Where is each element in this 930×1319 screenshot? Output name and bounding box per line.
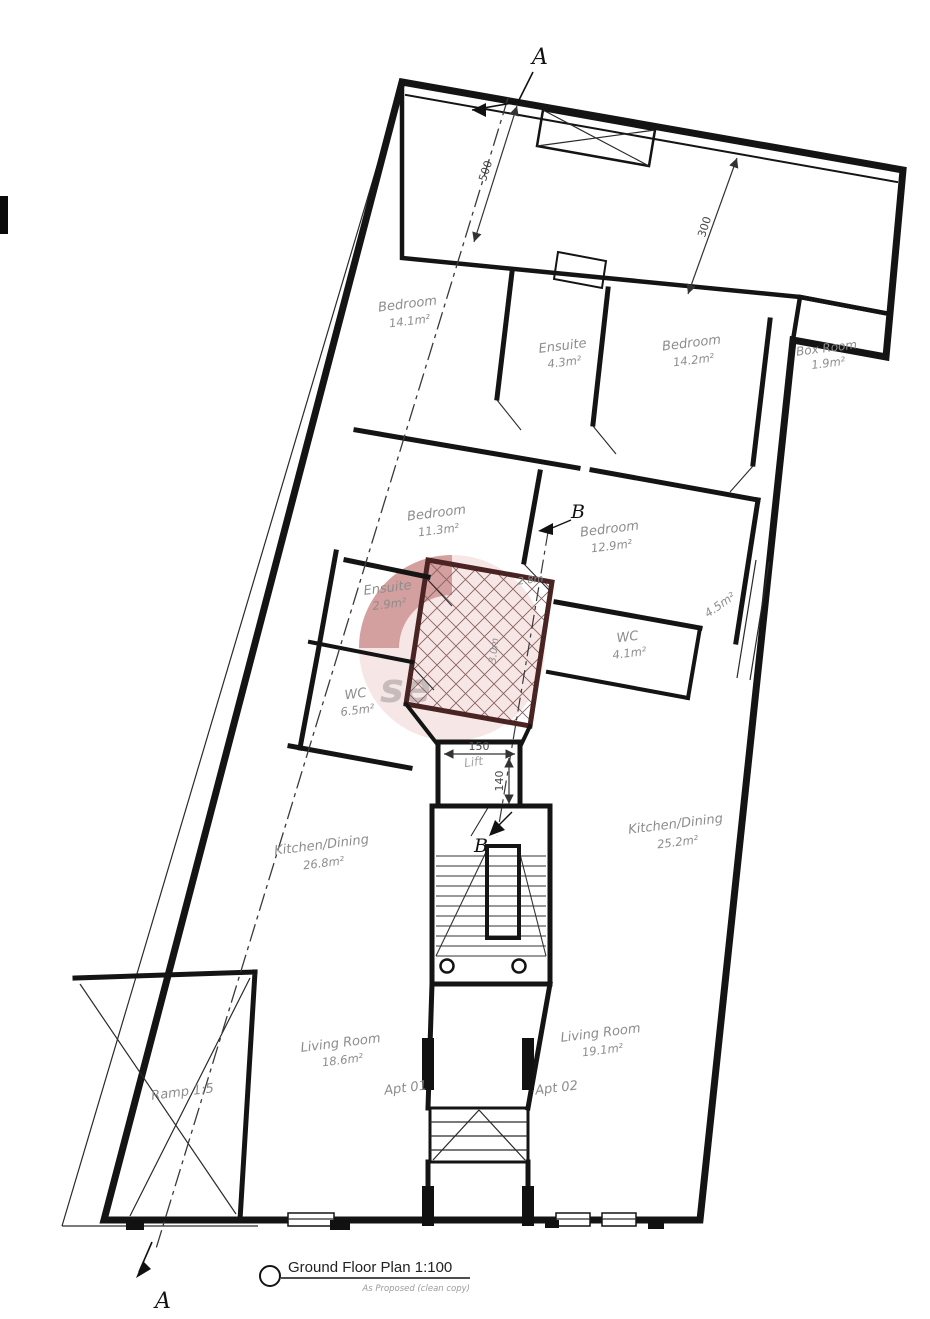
section-arrow xyxy=(489,820,505,836)
room-area: 14.1m² xyxy=(388,311,431,330)
roof-opening xyxy=(554,252,606,288)
dim-text-300: 300 xyxy=(695,215,714,239)
room-label-wc-4-1: WC 4.1m² xyxy=(610,628,648,662)
room-label-living-19-1: Living Room 19.1m² xyxy=(560,1021,644,1062)
room-name: Apt 01 xyxy=(382,1078,427,1098)
door-jamb xyxy=(522,1038,534,1090)
room-label-kitchen-26-8: Kitchen/Dining 26.8m² xyxy=(273,832,371,875)
section-marker-a-bottom: A xyxy=(153,1289,171,1314)
room-name: Ramp 1:5 xyxy=(150,1081,214,1104)
room-label-ensuite-4-3: Ensuite 4.3m² xyxy=(538,336,589,372)
section-arrow xyxy=(136,1261,151,1278)
room-label-box-room: Box Room 1.9m² xyxy=(795,337,859,373)
room-label-bedroom-14-2: Bedroom 14.2m² xyxy=(661,332,723,370)
room-area: 4.3m² xyxy=(547,353,583,371)
dim-text-500: 500 xyxy=(476,159,495,183)
room-area: 4.5m² xyxy=(702,589,738,620)
room-label-ramp: Ramp 1:5 xyxy=(150,1081,214,1104)
newel-post xyxy=(441,960,454,973)
room-name: WC xyxy=(616,629,641,647)
room-area: 18.6m² xyxy=(321,1050,364,1069)
room-label-lift: Lift xyxy=(463,754,485,770)
section-arrow xyxy=(472,103,486,117)
room-label-kitchen-25-2: Kitchen/Dining 25.2m² xyxy=(627,811,725,854)
dim-text-150: 150 xyxy=(469,740,490,753)
room-area: 11.3m² xyxy=(417,520,460,539)
room-name: Kitchen/Dining xyxy=(273,832,369,858)
room-label-living-18-6: Living Room 18.6m² xyxy=(300,1031,384,1072)
room-name: Kitchen/Dining xyxy=(627,811,723,837)
dimension-500: 500 xyxy=(474,106,517,242)
drawing-title: Ground Floor Plan 1:100 As Proposed (cle… xyxy=(260,1259,470,1294)
room-area: 6.5m² xyxy=(340,701,376,719)
room-label-bedroom-12-9: Bedroom 12.9m² xyxy=(579,518,641,556)
room-area: 25.2m² xyxy=(656,832,699,851)
room-area: 12.9m² xyxy=(590,536,633,555)
door-jamb xyxy=(422,1186,434,1226)
room-name: Lift xyxy=(463,754,485,770)
floor-plan-page: se xyxy=(0,0,930,1319)
dimension-300: 300 xyxy=(688,158,737,294)
title-subtitle: As Proposed (clean copy) xyxy=(361,1284,470,1294)
edge-mark xyxy=(0,196,8,234)
corridor-walls xyxy=(422,984,550,1226)
room-area: 1.9m² xyxy=(811,354,847,372)
room-name: WC xyxy=(344,686,369,704)
room-label-apt-02: Apt 02 xyxy=(533,1078,578,1098)
room-area: 4.1m² xyxy=(612,644,648,662)
room-area: 19.1m² xyxy=(581,1040,624,1059)
section-marker-b-top: B xyxy=(570,501,585,523)
floor-plan-svg: se xyxy=(0,0,930,1319)
room-label-bedroom-14-1: Bedroom 14.1m² xyxy=(377,293,439,331)
title-bullet xyxy=(260,1266,280,1286)
stair-void xyxy=(487,846,519,938)
room-area: 14.2m² xyxy=(672,350,715,369)
section-arrow xyxy=(538,523,553,535)
entrance-steps xyxy=(430,1108,528,1162)
dim-text-140: 140 xyxy=(493,771,506,792)
title-text: Ground Floor Plan 1:100 xyxy=(288,1259,452,1276)
room-label-apt-01: Apt 01 xyxy=(382,1078,427,1098)
room-label-bedroom-11-3: Bedroom 11.3m² xyxy=(406,502,468,540)
door-jamb xyxy=(522,1186,534,1226)
room-label-4-5: 4.5m² xyxy=(702,589,738,620)
room-name: Apt 02 xyxy=(533,1078,578,1098)
section-marker-a-top: A xyxy=(530,45,548,70)
room-area: 26.8m² xyxy=(302,853,345,872)
section-marker-b-bottom: B xyxy=(473,835,488,857)
newel-post xyxy=(513,960,526,973)
